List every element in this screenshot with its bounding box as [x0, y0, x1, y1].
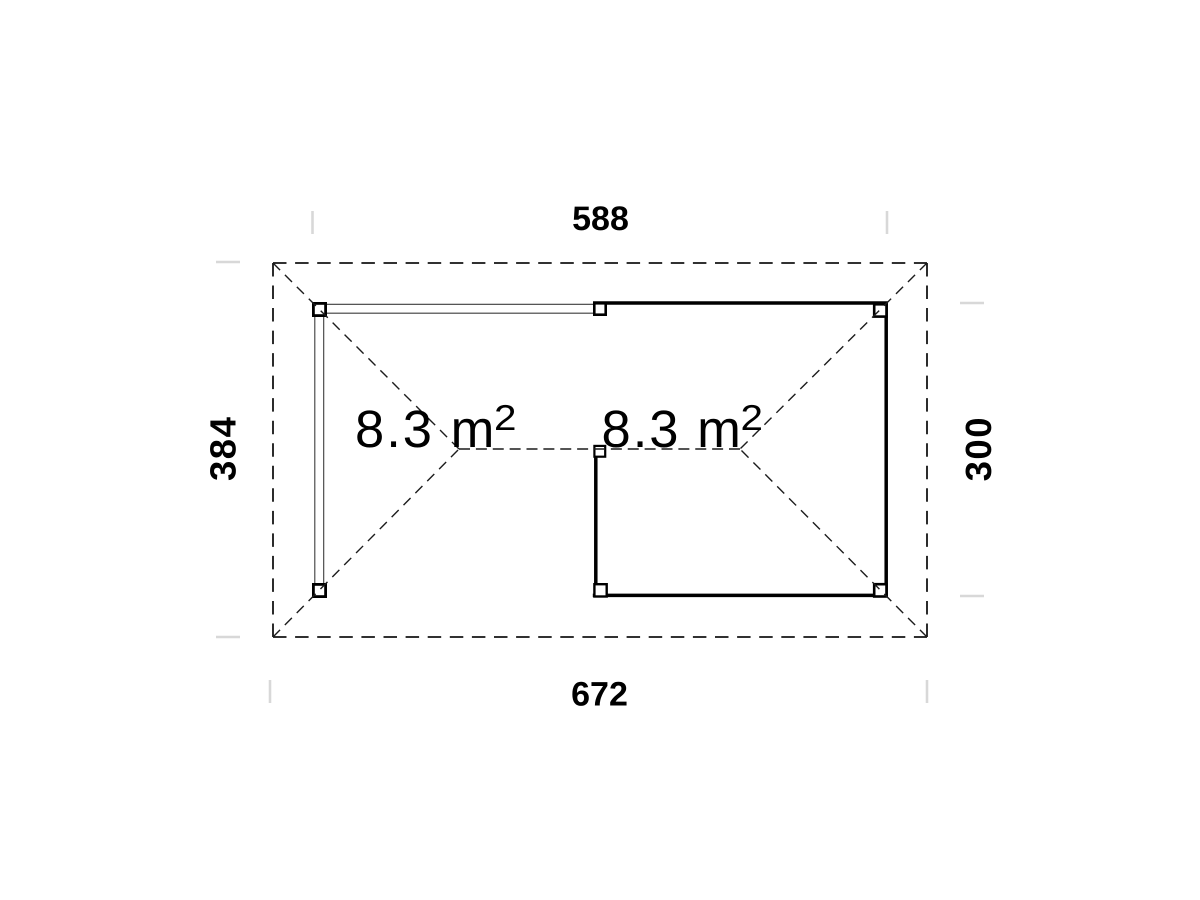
svg-text:2: 2 — [741, 397, 764, 438]
svg-text:2: 2 — [494, 397, 517, 438]
svg-text:384: 384 — [203, 416, 244, 481]
svg-text:672: 672 — [571, 676, 628, 714]
svg-text:588: 588 — [572, 200, 629, 238]
svg-text:8.3 m: 8.3 m — [355, 400, 496, 459]
svg-text:300: 300 — [958, 416, 999, 481]
svg-text:8.3 m: 8.3 m — [602, 400, 743, 459]
